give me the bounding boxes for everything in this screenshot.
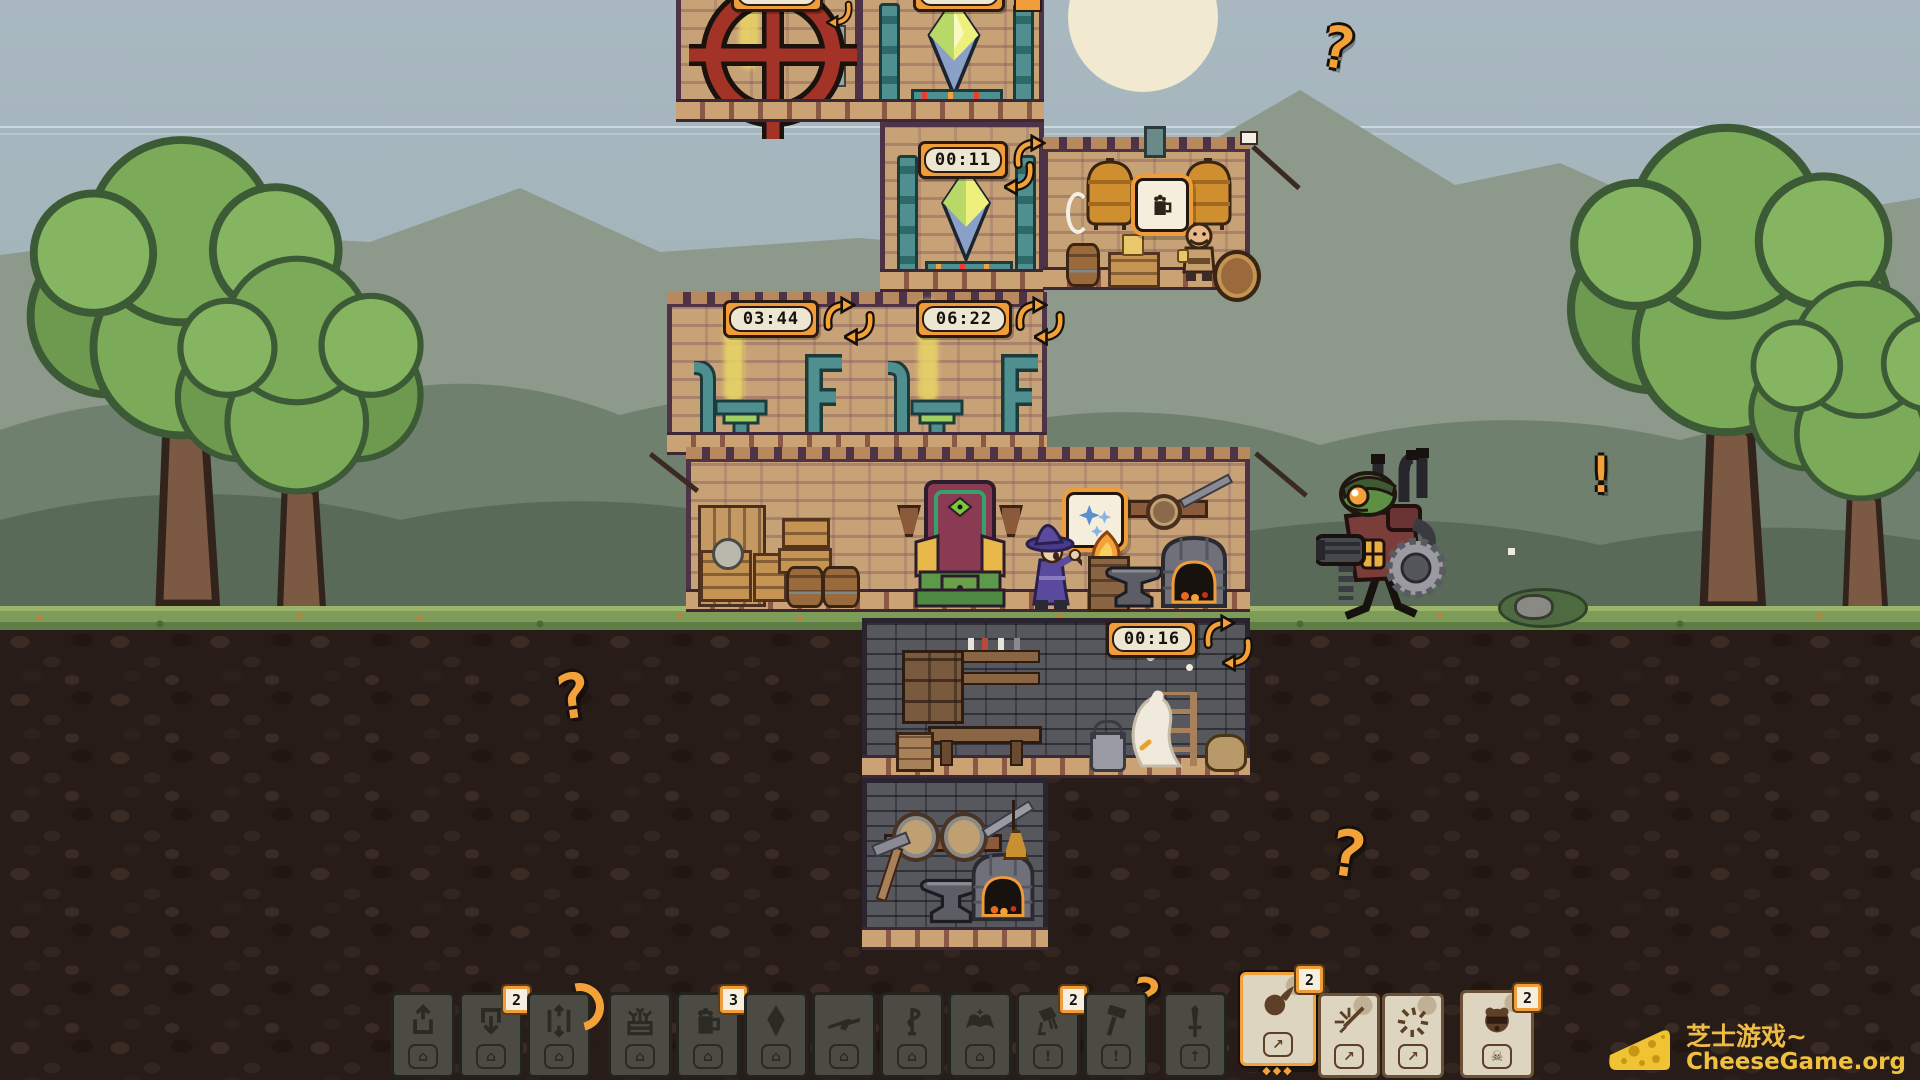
timer-top-right[interactable]: 00:14 [913, 0, 1005, 12]
shelf-plank [962, 672, 1040, 685]
action-card-pour[interactable]: !2 [1016, 992, 1080, 1078]
timer-arrow-icon[interactable] [1004, 160, 1038, 196]
white-particle [1508, 548, 1515, 555]
timer-value: 00:11 [924, 147, 1002, 173]
brew-kettle [1084, 158, 1136, 232]
card-footer-house-icon: ⌂ [476, 1044, 506, 1069]
room-card-brewery[interactable]: ⌂3 [676, 992, 740, 1078]
beast-head-icon [1478, 1000, 1516, 1038]
cut-arrow-tab [1014, 0, 1042, 12]
floor-band [676, 99, 860, 122]
goblin-mech[interactable] [1316, 448, 1458, 626]
white-goose[interactable] [1116, 684, 1190, 770]
room-card-farm[interactable]: ⌂ [608, 992, 672, 1078]
tree [1742, 255, 1920, 632]
timer-arrow-icon[interactable] [844, 310, 878, 346]
spell-card-burst[interactable]: ↗ [1382, 993, 1444, 1078]
barrel [822, 566, 860, 608]
card-count-badge: 2 [1296, 966, 1323, 993]
timer-steam-right[interactable]: 06:22 [916, 300, 1012, 338]
pipe [1013, 3, 1034, 109]
room-card-export[interactable]: ⌂ [391, 992, 455, 1078]
flag [1240, 131, 1258, 145]
throne[interactable] [912, 478, 1008, 612]
timer-crystal-room[interactable]: 00:11 [918, 141, 1008, 179]
timer-value: 00:14 [919, 0, 999, 6]
room-card-import[interactable]: ⌂2 [459, 992, 523, 1078]
rock [1514, 594, 1554, 620]
timer-value: 03:44 [729, 306, 813, 332]
card-count-badge: 2 [1060, 986, 1087, 1013]
action-card-build[interactable]: ! [1084, 992, 1148, 1078]
beer-mug-icon [1147, 190, 1177, 220]
timer-value: 00:26 [737, 0, 817, 6]
timer-steam-left[interactable]: 03:44 [723, 300, 819, 338]
watermark-site[interactable]: CheeseGame.org [1686, 1050, 1906, 1074]
bench-leg [940, 740, 953, 766]
shelf-bottles [968, 638, 1028, 650]
selected-card-ornament: ◆◆◆ [1262, 1064, 1293, 1077]
watermark: 芝士游戏~ CheeseGame.org [1604, 1024, 1906, 1074]
card-footer-cast-icon: ↗ [1398, 1044, 1428, 1069]
timer-value: 00:16 [1112, 626, 1192, 652]
shelf-plank [962, 650, 1040, 663]
card-count-badge: 3 [720, 986, 747, 1013]
card-footer-house-icon: ⌂ [965, 1044, 995, 1069]
wizard[interactable] [1022, 512, 1082, 612]
card-count-badge: 2 [503, 986, 530, 1013]
hammer-icon [1097, 1002, 1135, 1040]
fireball-icon [1259, 982, 1297, 1020]
crate [1108, 252, 1160, 288]
log-stool [896, 732, 934, 772]
timer-cellar[interactable]: 00:16 [1106, 620, 1198, 658]
room-card-gunsmith[interactable]: ⌂ [812, 992, 876, 1078]
floor-band [880, 269, 1044, 292]
spell-card-slash[interactable]: ↗ [1318, 993, 1380, 1078]
watermark-brand: 芝士游戏~ [1686, 1024, 1906, 1050]
snake-staff-icon [893, 1002, 931, 1040]
arrow-up-out-icon [404, 1002, 442, 1040]
card-footer-house-icon: ⌂ [761, 1044, 791, 1069]
card-footer-cast-icon: ↗ [1263, 1032, 1293, 1057]
planter-icon [621, 1002, 659, 1040]
card-footer-house-icon: ⌂ [625, 1044, 655, 1069]
mana-crystal [937, 167, 995, 261]
card-footer-house-icon: ⌂ [408, 1044, 438, 1069]
unit-card-sword[interactable]: ↑ [1163, 992, 1227, 1078]
spell-card-fireball[interactable]: ↗2◆◆◆ [1240, 972, 1316, 1066]
card-footer-exclaim-icon: ! [1101, 1044, 1131, 1069]
cheese-icon [1604, 1025, 1676, 1073]
chimney [1144, 126, 1166, 158]
barrel [786, 566, 824, 608]
barrel [1066, 243, 1100, 287]
tree [168, 232, 428, 632]
crystal-room-upper[interactable] [858, 0, 1044, 122]
cabinet [902, 650, 964, 724]
round-shield [1146, 494, 1182, 530]
forge [1155, 532, 1233, 612]
timer-arrow-icon[interactable] [1222, 636, 1256, 672]
mana-crystal [921, 0, 987, 97]
room-card-crystal[interactable]: ⌂ [744, 992, 808, 1078]
steam-curl [1066, 192, 1090, 234]
sack [1205, 734, 1247, 772]
card-footer-house-icon: ⌂ [897, 1044, 927, 1069]
timer-arrow-icon[interactable] [1034, 310, 1068, 346]
floor-band [858, 99, 1044, 122]
brewer-dwarf[interactable] [1176, 220, 1222, 284]
room-card-elevator[interactable]: ⌂ [527, 992, 591, 1078]
hanging-lamp [1012, 800, 1015, 832]
timer-top-left[interactable]: 00:26 [731, 0, 823, 12]
game-screen: 00:26 00:14 00:11 03:44 06:22 00:16 ? ? … [0, 0, 1920, 1080]
room-card-alchemy[interactable]: ⌂ [880, 992, 944, 1078]
crate-stack [782, 518, 830, 548]
spellbook-icon [961, 1002, 999, 1040]
burst-icon [1394, 1003, 1432, 1041]
pipe [879, 3, 900, 109]
card-footer-cast-icon: ↗ [1334, 1044, 1364, 1069]
card-footer-exclaim-icon: ! [1033, 1044, 1063, 1069]
tool-wheel [712, 538, 744, 570]
beer-mug-prop [1122, 234, 1144, 256]
slash-icon [1330, 1003, 1368, 1041]
spell-card-beast[interactable]: ☠2 [1460, 990, 1534, 1078]
roof-band [686, 447, 1250, 462]
crystal-icon [757, 1002, 795, 1040]
timer-arrow-icon[interactable] [826, 0, 856, 30]
card-footer-skull-icon: ☠ [1482, 1044, 1512, 1069]
sword-icon [1176, 1002, 1214, 1040]
card-footer-arrow-up-icon: ↑ [1180, 1044, 1210, 1069]
splash [1186, 664, 1193, 671]
room-card-library[interactable]: ⌂ [948, 992, 1012, 1078]
floor-band [862, 927, 1048, 950]
card-footer-house-icon: ⌂ [829, 1044, 859, 1069]
card-footer-house-icon: ⌂ [544, 1044, 574, 1069]
card-count-badge: 2 [1514, 984, 1541, 1011]
bench-leg [1010, 740, 1023, 766]
card-footer-house-icon: ⌂ [693, 1044, 723, 1069]
rifle-icon [825, 1002, 863, 1040]
alert-marker[interactable]: ! [1586, 446, 1616, 504]
timer-value: 06:22 [922, 306, 1006, 332]
